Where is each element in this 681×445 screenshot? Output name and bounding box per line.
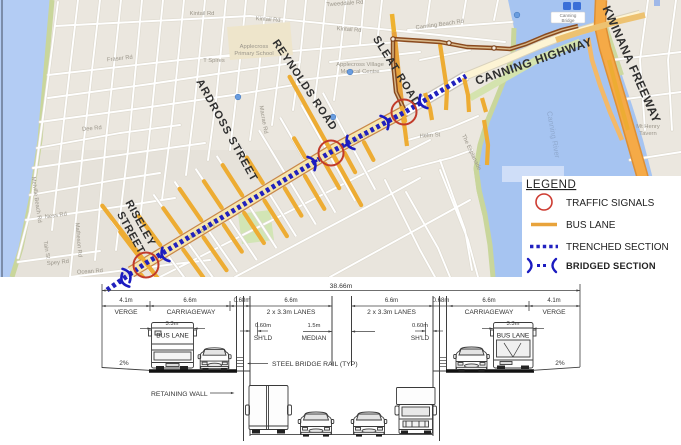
svg-text:CARRIAGEWAY: CARRIAGEWAY: [465, 309, 514, 316]
svg-text:Applecross Village: Applecross Village: [336, 62, 384, 68]
svg-text:VERGE: VERGE: [542, 309, 566, 316]
svg-text:BUS LANE: BUS LANE: [566, 220, 616, 231]
svg-text:Medical Centre: Medical Centre: [341, 69, 380, 75]
svg-text:BUS LANE: BUS LANE: [497, 333, 530, 340]
svg-text:1.5m: 1.5m: [308, 323, 321, 329]
svg-text:LEGEND: LEGEND: [526, 179, 576, 191]
svg-text:TRENCHED SECTION: TRENCHED SECTION: [566, 242, 669, 253]
svg-text:CARRIAGEWAY: CARRIAGEWAY: [167, 309, 216, 316]
svg-text:0.60m: 0.60m: [412, 323, 428, 329]
svg-text:2%: 2%: [555, 360, 565, 367]
svg-text:6.6m: 6.6m: [385, 298, 398, 304]
svg-text:VERGE: VERGE: [114, 309, 138, 316]
svg-text:TRAFFIC SIGNALS: TRAFFIC SIGNALS: [566, 198, 655, 209]
svg-text:38.66m: 38.66m: [330, 283, 353, 290]
svg-text:RETAINING WALL: RETAINING WALL: [151, 391, 208, 398]
svg-text:Applecross: Applecross: [240, 44, 269, 50]
svg-text:BUS LANE: BUS LANE: [156, 333, 189, 340]
svg-text:4.1m: 4.1m: [119, 298, 132, 304]
svg-text:3.3m: 3.3m: [166, 321, 179, 327]
svg-text:6.6m: 6.6m: [482, 298, 495, 304]
svg-text:2%: 2%: [119, 360, 129, 367]
svg-text:Primary School: Primary School: [234, 51, 273, 57]
svg-text:3.3m: 3.3m: [507, 321, 520, 327]
svg-text:Tavern: Tavern: [639, 131, 656, 137]
svg-text:2 x 3.3m LANES: 2 x 3.3m LANES: [267, 309, 316, 316]
svg-text:BRIDGED SECTION: BRIDGED SECTION: [566, 261, 656, 271]
svg-text:STEEL BRIDGE RAIL (TYP): STEEL BRIDGE RAIL (TYP): [272, 361, 358, 368]
svg-text:4.1m: 4.1m: [547, 298, 560, 304]
svg-text:0.60m: 0.60m: [255, 323, 271, 329]
svg-text:SH'LD: SH'LD: [411, 335, 430, 342]
svg-text:SH'LD: SH'LD: [254, 335, 273, 342]
svg-text:2 x 3.3m LANES: 2 x 3.3m LANES: [367, 309, 416, 316]
svg-text:Bridge: Bridge: [561, 18, 575, 23]
svg-text:6.6m: 6.6m: [284, 298, 297, 304]
svg-text:Kintail Rd: Kintail Rd: [190, 11, 215, 17]
svg-text:6.6m: 6.6m: [183, 298, 196, 304]
svg-text:T Spires: T Spires: [203, 58, 225, 64]
svg-text:MEDIAN: MEDIAN: [302, 335, 327, 342]
svg-text:Mt Henry: Mt Henry: [636, 124, 660, 130]
